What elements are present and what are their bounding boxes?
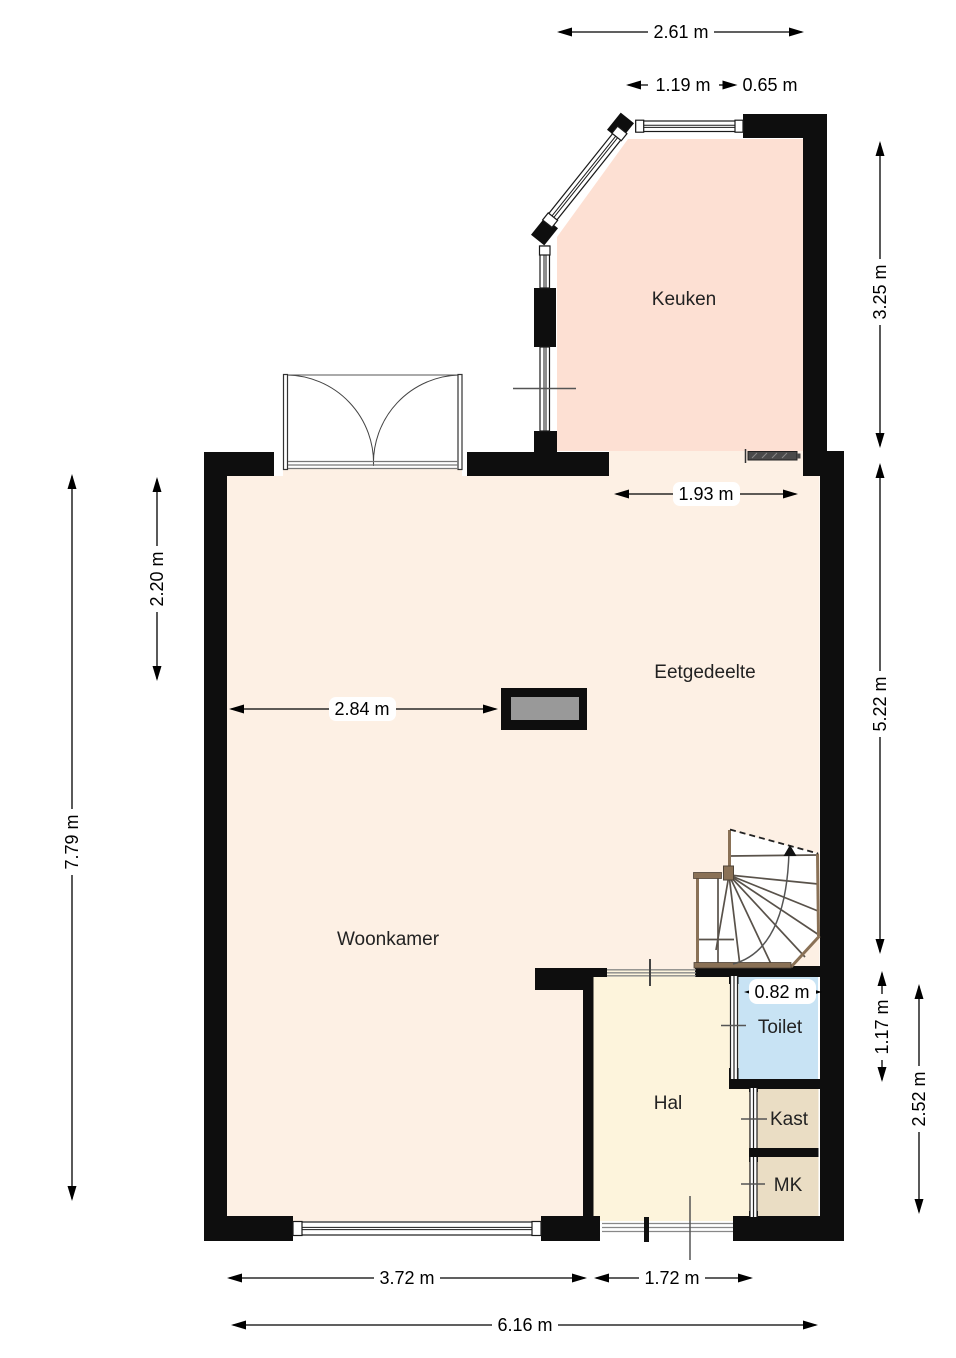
svg-text:2.20 m: 2.20 m — [147, 551, 167, 606]
svg-text:MK: MK — [774, 1175, 803, 1196]
svg-text:Eetgedeelte: Eetgedeelte — [654, 662, 755, 683]
svg-text:Kast: Kast — [770, 1109, 809, 1130]
svg-text:0.65 m: 0.65 m — [742, 75, 797, 95]
svg-text:3.25 m: 3.25 m — [870, 264, 890, 319]
svg-text:0.82 m: 0.82 m — [754, 982, 809, 1002]
svg-text:1.17 m: 1.17 m — [872, 999, 892, 1054]
svg-text:1.72 m: 1.72 m — [644, 1268, 699, 1288]
svg-text:2.61 m: 2.61 m — [653, 22, 708, 42]
svg-text:6.16 m: 6.16 m — [497, 1315, 552, 1335]
svg-text:2.84 m: 2.84 m — [334, 699, 389, 719]
svg-text:5.22 m: 5.22 m — [870, 676, 890, 731]
svg-text:Keuken: Keuken — [652, 289, 716, 310]
svg-text:Woonkamer: Woonkamer — [337, 929, 440, 950]
svg-text:3.72 m: 3.72 m — [379, 1268, 434, 1288]
svg-text:1.93 m: 1.93 m — [678, 484, 733, 504]
svg-text:1.19 m: 1.19 m — [655, 75, 710, 95]
svg-text:2.52 m: 2.52 m — [909, 1071, 929, 1126]
svg-text:Hal: Hal — [654, 1093, 683, 1114]
svg-text:7.79 m: 7.79 m — [62, 814, 82, 869]
svg-text:Toilet: Toilet — [758, 1017, 803, 1038]
